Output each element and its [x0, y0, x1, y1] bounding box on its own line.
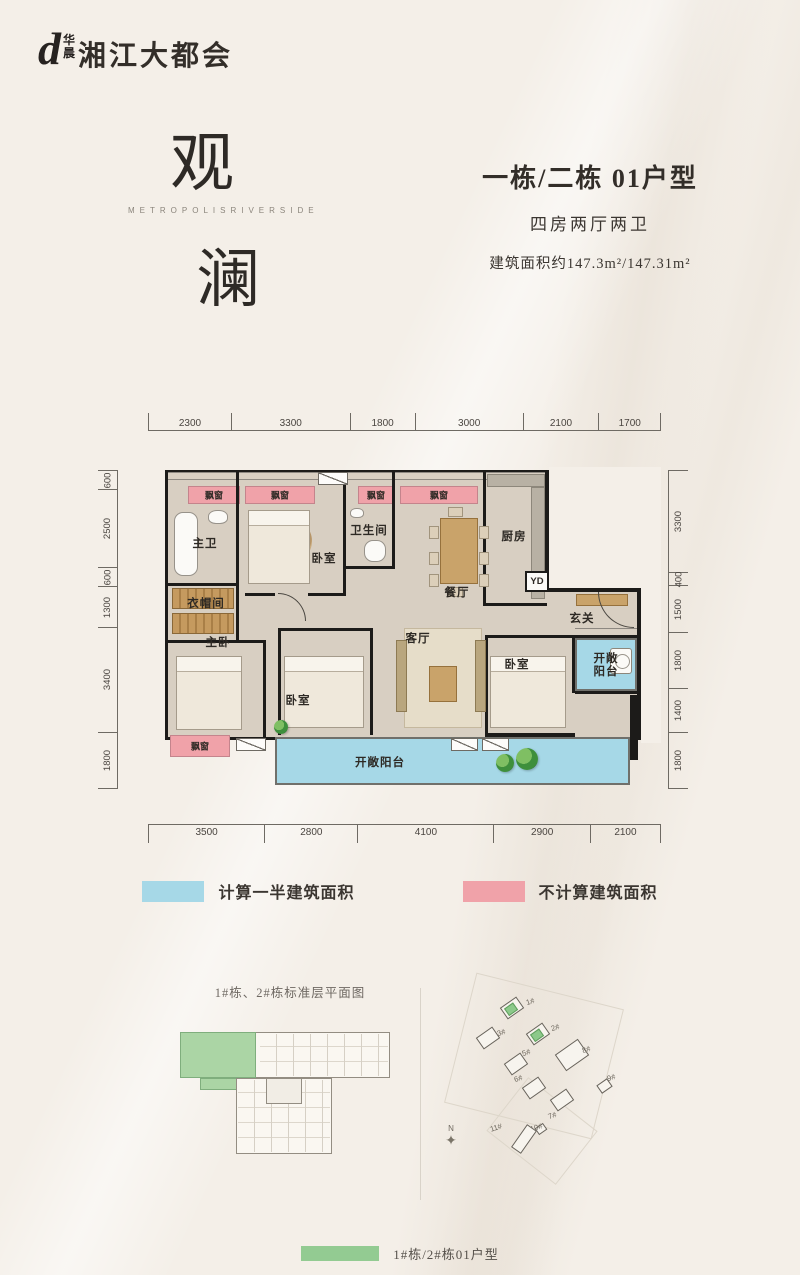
dimension-value: 1800: [673, 650, 684, 671]
sofa-icon: [396, 640, 407, 712]
dimension-segment: 1500: [669, 586, 688, 633]
wall: [345, 566, 395, 569]
dimension-segment: 3000: [416, 413, 524, 430]
hero-character-top: 观: [170, 112, 234, 204]
legend-swatch-blue: [142, 881, 204, 902]
dimension-value: 1700: [619, 418, 641, 429]
dimension-segment: 1400: [669, 689, 688, 733]
wall: [485, 635, 640, 638]
room-label-master-bath: 主卫: [193, 535, 218, 551]
dimension-value: 2900: [531, 827, 553, 838]
wall: [263, 640, 266, 737]
logo-mark-icon: d: [38, 26, 59, 72]
wall: [370, 628, 373, 735]
window-symbol-icon: [482, 738, 509, 751]
wall: [165, 583, 239, 586]
unit-area: 建筑面积约147.3m²/147.31m²: [462, 252, 718, 273]
shower-icon: [364, 540, 386, 562]
area-legend: 计算一半建筑面积 不计算建筑面积: [0, 879, 800, 903]
room-label-open-balcony: 开敞阳台: [593, 653, 619, 679]
dimension-value: 3400: [102, 669, 113, 690]
room-label-bathroom: 卫生间: [350, 522, 388, 538]
room-label-bedroom: 卧室: [286, 692, 311, 708]
dimension-value: 600: [102, 472, 113, 488]
room-label-bedroom: 卧室: [312, 550, 337, 566]
dimension-column-left: 6002500600130034001800: [98, 470, 118, 789]
dimension-value: 3000: [458, 418, 480, 429]
room-label-open-balcony: 开敞阳台: [355, 754, 405, 770]
legend-label-excluded-area: 不计算建筑面积: [539, 879, 658, 903]
room-label-cloakroom: 衣帽间: [187, 595, 225, 611]
room-label-living: 客厅: [406, 630, 431, 646]
plan-cutout-right: [641, 588, 661, 743]
room-label-dining: 餐厅: [445, 584, 470, 600]
dimension-value: 1800: [673, 750, 684, 771]
legend-item-half-area: 计算一半建筑面积: [142, 879, 354, 903]
dimension-row-bottom: 35002800410029002100: [148, 824, 661, 843]
hero-english-subtitle: METROPOLISRIVERSIDE: [128, 206, 319, 215]
dimension-segment: 3500: [149, 825, 265, 843]
footer-legend-swatch-green: [301, 1246, 379, 1261]
room-label-bay-window: 飘窗: [367, 489, 385, 502]
dimension-segment: 2100: [524, 413, 600, 430]
wall: [485, 733, 575, 737]
legend-swatch-pink: [463, 881, 525, 902]
dimension-value: 3300: [280, 418, 302, 429]
dimension-segment: 2300: [149, 413, 232, 430]
chair-icon: [448, 507, 463, 517]
closet-icon: [172, 613, 234, 634]
dimension-segment: 2100: [591, 825, 661, 843]
dimension-value: 600: [102, 569, 113, 585]
site-building-label: 9#: [606, 1072, 617, 1083]
wall: [236, 583, 239, 643]
dimension-value: 2800: [300, 827, 322, 838]
dimension-value: 3500: [195, 827, 217, 838]
wall: [483, 603, 547, 606]
wall: [572, 635, 575, 693]
dimension-value: 2500: [102, 518, 113, 539]
dimension-value: 1800: [371, 418, 393, 429]
compass: N ✦: [440, 1125, 462, 1147]
chair-icon: [429, 526, 439, 539]
dimension-segment: 2900: [494, 825, 590, 843]
logo-brand-stack: 华 晨: [63, 34, 75, 60]
chair-icon: [479, 526, 489, 539]
counter-icon: [487, 474, 545, 487]
dimension-value: 4100: [415, 827, 437, 838]
wall: [630, 695, 638, 760]
section-divider: [420, 988, 421, 1200]
legend-label-half-area: 计算一半建筑面积: [218, 879, 354, 903]
wall: [236, 470, 239, 585]
footer-legend-label: 1#栋/2#栋01户型: [393, 1244, 499, 1263]
key-plan-detail-lines: [260, 1034, 388, 1076]
bed-icon: [176, 656, 242, 730]
dimension-segment: 600: [98, 568, 117, 587]
dimension-value: 2100: [550, 418, 572, 429]
dimension-value: 400: [673, 571, 684, 587]
room-label-bedroom: 卧室: [505, 656, 530, 672]
wall: [343, 470, 346, 593]
room-label-foyer: 玄关: [570, 610, 595, 626]
room-label-bay-window: 飘窗: [205, 489, 223, 502]
dimension-value: 1400: [673, 700, 684, 721]
wall: [245, 593, 275, 596]
wall: [575, 691, 640, 694]
dimension-segment: 1800: [669, 733, 688, 789]
dimension-segment: 1800: [351, 413, 416, 430]
dimension-value: 2300: [179, 418, 201, 429]
room-label-bay-window: 飘窗: [191, 740, 209, 753]
logo-brand-char-bottom: 晨: [63, 47, 75, 60]
bed-icon: [248, 510, 310, 584]
legend-item-excluded-area: 不计算建筑面积: [463, 879, 658, 903]
wall: [308, 593, 346, 596]
dimension-value: 3300: [673, 511, 684, 532]
room-label-bay-window: 飘窗: [430, 489, 448, 502]
dimension-segment: 1800: [98, 733, 117, 789]
floor-plan: YD 飘窗 飘窗 飘窗 飘窗 飘窗 主卫 卧室 卫生间 餐厅 厨房 玄关 衣帽间…: [148, 470, 660, 788]
dimension-segment: 600: [98, 471, 117, 490]
wall: [392, 470, 395, 568]
footer-legend: 1#栋/2#栋01户型: [0, 1244, 800, 1263]
dimension-value: 2100: [614, 827, 636, 838]
sink-icon: [350, 508, 364, 518]
dimension-value: 1800: [102, 750, 113, 771]
chair-icon: [429, 552, 439, 565]
room-label-bay-window: 飘窗: [271, 489, 289, 502]
key-plan-caption: 1#栋、2#栋标准层平面图: [160, 982, 420, 1001]
wall: [278, 628, 373, 631]
key-plan-highlight-unit: [180, 1032, 256, 1078]
wall: [278, 628, 281, 735]
dimension-segment: 1300: [98, 587, 117, 628]
plant-icon: [496, 754, 514, 772]
room-label-master-bedroom: 主卧: [206, 634, 231, 650]
table-icon: [429, 666, 457, 702]
dimension-segment: 2800: [265, 825, 358, 843]
compass-icon: ✦: [440, 1133, 462, 1147]
dimension-segment: 3300: [232, 413, 351, 430]
chair-icon: [479, 552, 489, 565]
key-plan-core: [266, 1078, 302, 1104]
plant-icon: [274, 720, 288, 734]
key-plan: [178, 1026, 408, 1186]
chair-icon: [479, 574, 489, 587]
unit-info: 一栋/二栋 01户型 四房两厅两卫 建筑面积约147.3m²/147.31m²: [462, 158, 718, 273]
dimension-segment: 2500: [98, 490, 117, 567]
chair-icon: [429, 574, 439, 587]
table-icon: [440, 518, 478, 584]
site-plan: 1#2#3#5#8#9#6#7#10#11# N ✦: [440, 985, 680, 1210]
unit-room-count: 四房两厅两卫: [462, 210, 718, 235]
dimension-segment: 3400: [98, 628, 117, 733]
laundry-yard-box: YD: [525, 571, 549, 592]
brand-logo: d 华 晨 湘江大都会: [38, 26, 233, 74]
plant-icon: [516, 748, 538, 770]
window-symbol-icon: [236, 738, 266, 751]
dimension-segment: 400: [669, 573, 688, 586]
window-symbol-icon: [451, 738, 478, 751]
sofa-icon: [475, 640, 486, 712]
dimension-value: 1500: [673, 599, 684, 620]
dimension-value: 1300: [102, 596, 113, 617]
toilet-icon: [208, 510, 228, 524]
unit-title: 一栋/二栋 01户型: [462, 158, 718, 195]
logo-project-name: 湘江大都会: [78, 34, 233, 74]
dimension-segment: 1700: [599, 413, 661, 430]
dimension-segment: 3300: [669, 471, 688, 573]
dimension-row-top: 230033001800300021001700: [148, 413, 661, 431]
room-label-kitchen: 厨房: [502, 528, 527, 544]
dimension-column-right: 33004001500180014001800: [668, 470, 688, 789]
plan-cutout-top-right: [549, 467, 661, 588]
hero-character-bottom: 澜: [196, 228, 260, 320]
dimension-segment: 1800: [669, 633, 688, 689]
dimension-segment: 4100: [358, 825, 494, 843]
window-symbol-icon: [318, 472, 348, 485]
poster-page: { "colors":{"blue":"#a6d8e7","pink":"#f0…: [0, 0, 800, 1275]
